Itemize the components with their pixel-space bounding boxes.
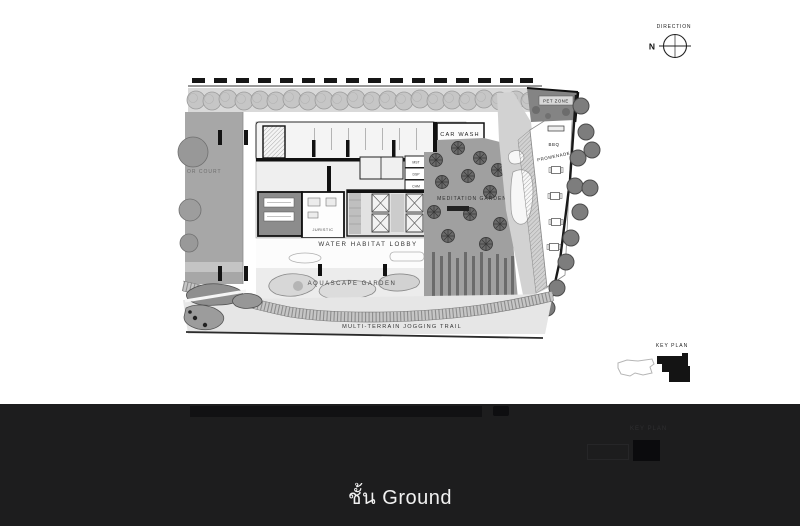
meditation-garden-label: MEDITATION GARDEN: [437, 196, 507, 202]
key-plan-solid-shape: [657, 353, 690, 382]
next-slide-key-plan: KEY PLAN: [585, 424, 705, 472]
jogging-trail-label: MULTI-TERRAIN JOGGING TRAIL: [342, 324, 462, 330]
key-plan-outline-shape: [618, 359, 654, 376]
key-plan: KEY PLAN: [618, 343, 690, 382]
room-dsp-label: DSP: [413, 173, 421, 177]
footer-overlay: KEY PLAN ชั้น Ground: [0, 404, 800, 526]
next-key-plan-solid-shape: [633, 440, 660, 461]
juristic-label: JURISTIC: [312, 228, 333, 232]
juristic-office: JURISTIC: [302, 192, 344, 238]
compass: DIRECTION N: [649, 24, 691, 58]
stair-core: [263, 126, 285, 158]
aquascape-garden-label: AQUASCAPE GARDEN: [308, 281, 397, 287]
court-label: OR COURT: [187, 169, 222, 175]
next-slide-fragment: [493, 406, 509, 416]
pet-zone-label: PET ZONE: [543, 99, 569, 104]
compass-north-label: N: [649, 42, 655, 52]
street-tree-row: [187, 88, 540, 112]
next-key-plan-label: KEY PLAN: [630, 426, 667, 432]
floor-plan-image: OR COURT CAR WASH AREA MST DSP: [0, 0, 800, 404]
next-key-plan-outline-shape: [587, 444, 629, 460]
room-mst-label: MST: [412, 161, 419, 165]
next-slide-street-band: [190, 406, 482, 417]
key-plan-label: KEY PLAN: [656, 343, 688, 349]
court-lawn: OR COURT: [178, 112, 248, 284]
car-wash-label-1: CAR WASH: [440, 132, 480, 138]
pet-zone: PET ZONE: [527, 88, 578, 122]
slide-caption: ชั้น Ground: [0, 481, 800, 513]
compass-direction-label: DIRECTION: [657, 24, 692, 30]
bbq-label: BBQ: [548, 142, 559, 147]
water-habitat-lobby-label: WATER HABITAT LOBBY: [318, 241, 417, 248]
elevator-core: [347, 190, 432, 236]
mail-room: [258, 192, 302, 236]
street-car-dashes: [188, 78, 542, 86]
slide-floor-plan: OR COURT CAR WASH AREA MST DSP: [0, 0, 800, 404]
room-chm-label: CHM: [412, 185, 420, 189]
